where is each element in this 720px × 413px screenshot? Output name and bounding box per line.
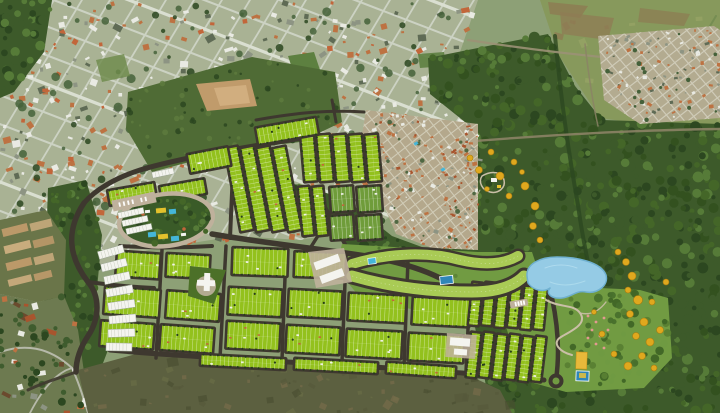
clubhouse-southeast	[445, 333, 477, 359]
aerial-masterplan-image: Oblique aerial rendering of a residentia…	[0, 0, 720, 413]
scene-canvas	[0, 0, 720, 413]
